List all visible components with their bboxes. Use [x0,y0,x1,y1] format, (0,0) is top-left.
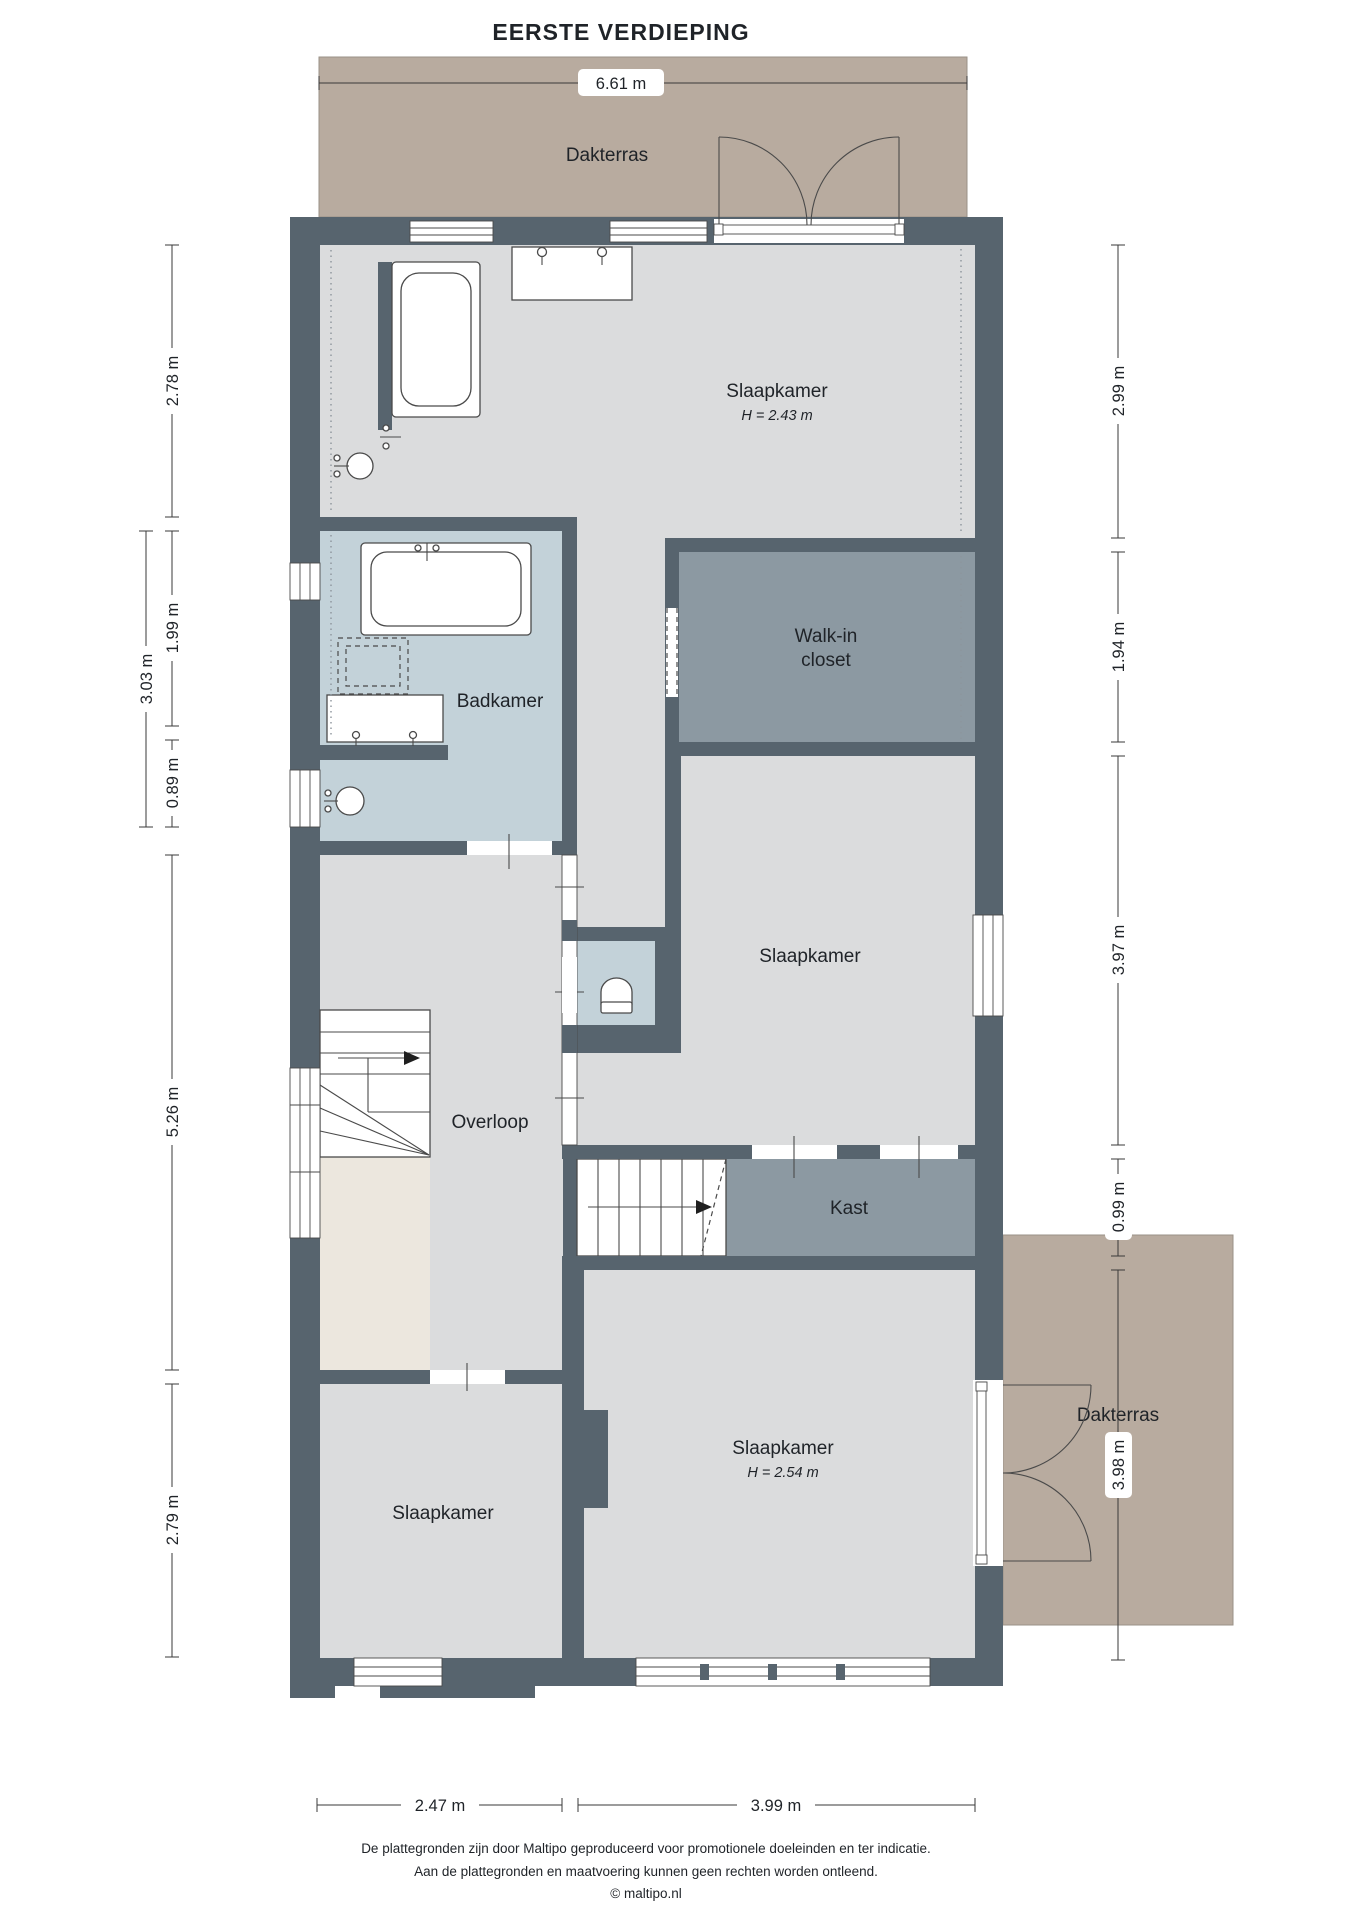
label-slaapkamer-top-height: H = 2.43 m [741,408,812,424]
footer-line-3: © maltipo.nl [610,1886,681,1901]
room-slaapkamer-bottom-right [584,1270,975,1658]
label-walk-in-2: closet [801,650,851,671]
dim-bottom-247: 2.47 m [415,1797,465,1815]
bathtub-badkamer-icon [361,543,531,635]
window-left-3 [290,1068,320,1238]
toilet-icon [601,978,632,1013]
dim-left-526: 5.26 m [164,1087,182,1137]
dim-left-199: 1.99 m [164,603,182,653]
dim-right-194: 1.94 m [1110,622,1128,672]
label-overloop: Overloop [451,1112,528,1133]
label-slaapkamer-top: Slaapkamer [726,381,828,402]
straight-stairs-icon [577,1159,726,1256]
dim-right-299: 2.99 m [1110,366,1128,416]
dim-left-278: 2.78 m [164,356,182,406]
winder-stairs-icon [320,1010,430,1157]
label-slaapkamer-bl: Slaapkamer [392,1503,494,1524]
room-walk-in-closet [679,552,975,742]
sink-round-bedroom-icon [334,453,373,479]
label-walk-in-1: Walk-in [795,626,858,647]
dim-left-303: 3.03 m [138,654,156,704]
window-top-1 [410,221,493,242]
window-bottom-1 [354,1658,442,1686]
label-badkamer: Badkamer [457,691,544,712]
floorplan-page: EERSTE VERDIEPING Dakterras Dakterras [0,0,1358,1920]
dim-left: 2.78 m 1.99 m 0.89 m 3.03 m 5.26 m 2.79 … [133,245,186,1657]
dim-bottom: 2.47 m 3.99 m [317,1792,975,1818]
window-top-2 [610,221,707,242]
roof-terrace-top-label: Dakterras [566,145,648,166]
label-slaapkamer-br: Slaapkamer [732,1438,834,1459]
footer-disclaimer: De plattegronden zijn door Maltipo gepro… [361,1841,931,1901]
dim-bottom-399: 3.99 m [751,1797,801,1815]
dim-right: 2.99 m 1.94 m 3.97 m 0.99 m 3.98 m [1105,245,1132,1660]
dresser-icon [512,247,632,300]
window-bottom-2 [636,1658,930,1686]
wall-chunk-bottom-mid [380,1686,535,1698]
window-left-2 [290,770,320,827]
window-left-1 [290,563,320,600]
vanity-icon [327,695,443,746]
dim-left-089: 0.89 m [164,758,182,808]
footer-line-1: De plattegronden zijn door Maltipo gepro… [361,1841,931,1856]
label-kast: Kast [830,1198,869,1219]
sink-round-badkamer-icon [324,787,364,815]
footer-line-2: Aan de plattegronden en maatvoering kunn… [414,1864,878,1879]
dim-top-label: 6.61 m [596,75,646,93]
label-slaapkamer-br-height: H = 2.54 m [747,1465,818,1481]
label-slaapkamer-mid: Slaapkamer [759,946,861,967]
dim-right-398: 3.98 m [1110,1440,1128,1490]
wall-chunk-bottom-left [290,1686,335,1698]
dim-right-397: 3.97 m [1110,925,1128,975]
window-right-1 [973,915,1003,1016]
dim-right-099: 0.99 m [1110,1182,1128,1232]
dim-left-279: 2.79 m [164,1495,182,1545]
page-title: EERSTE VERDIEPING [492,19,749,45]
floorplan-drawing: EERSTE VERDIEPING Dakterras Dakterras [0,0,1358,1920]
